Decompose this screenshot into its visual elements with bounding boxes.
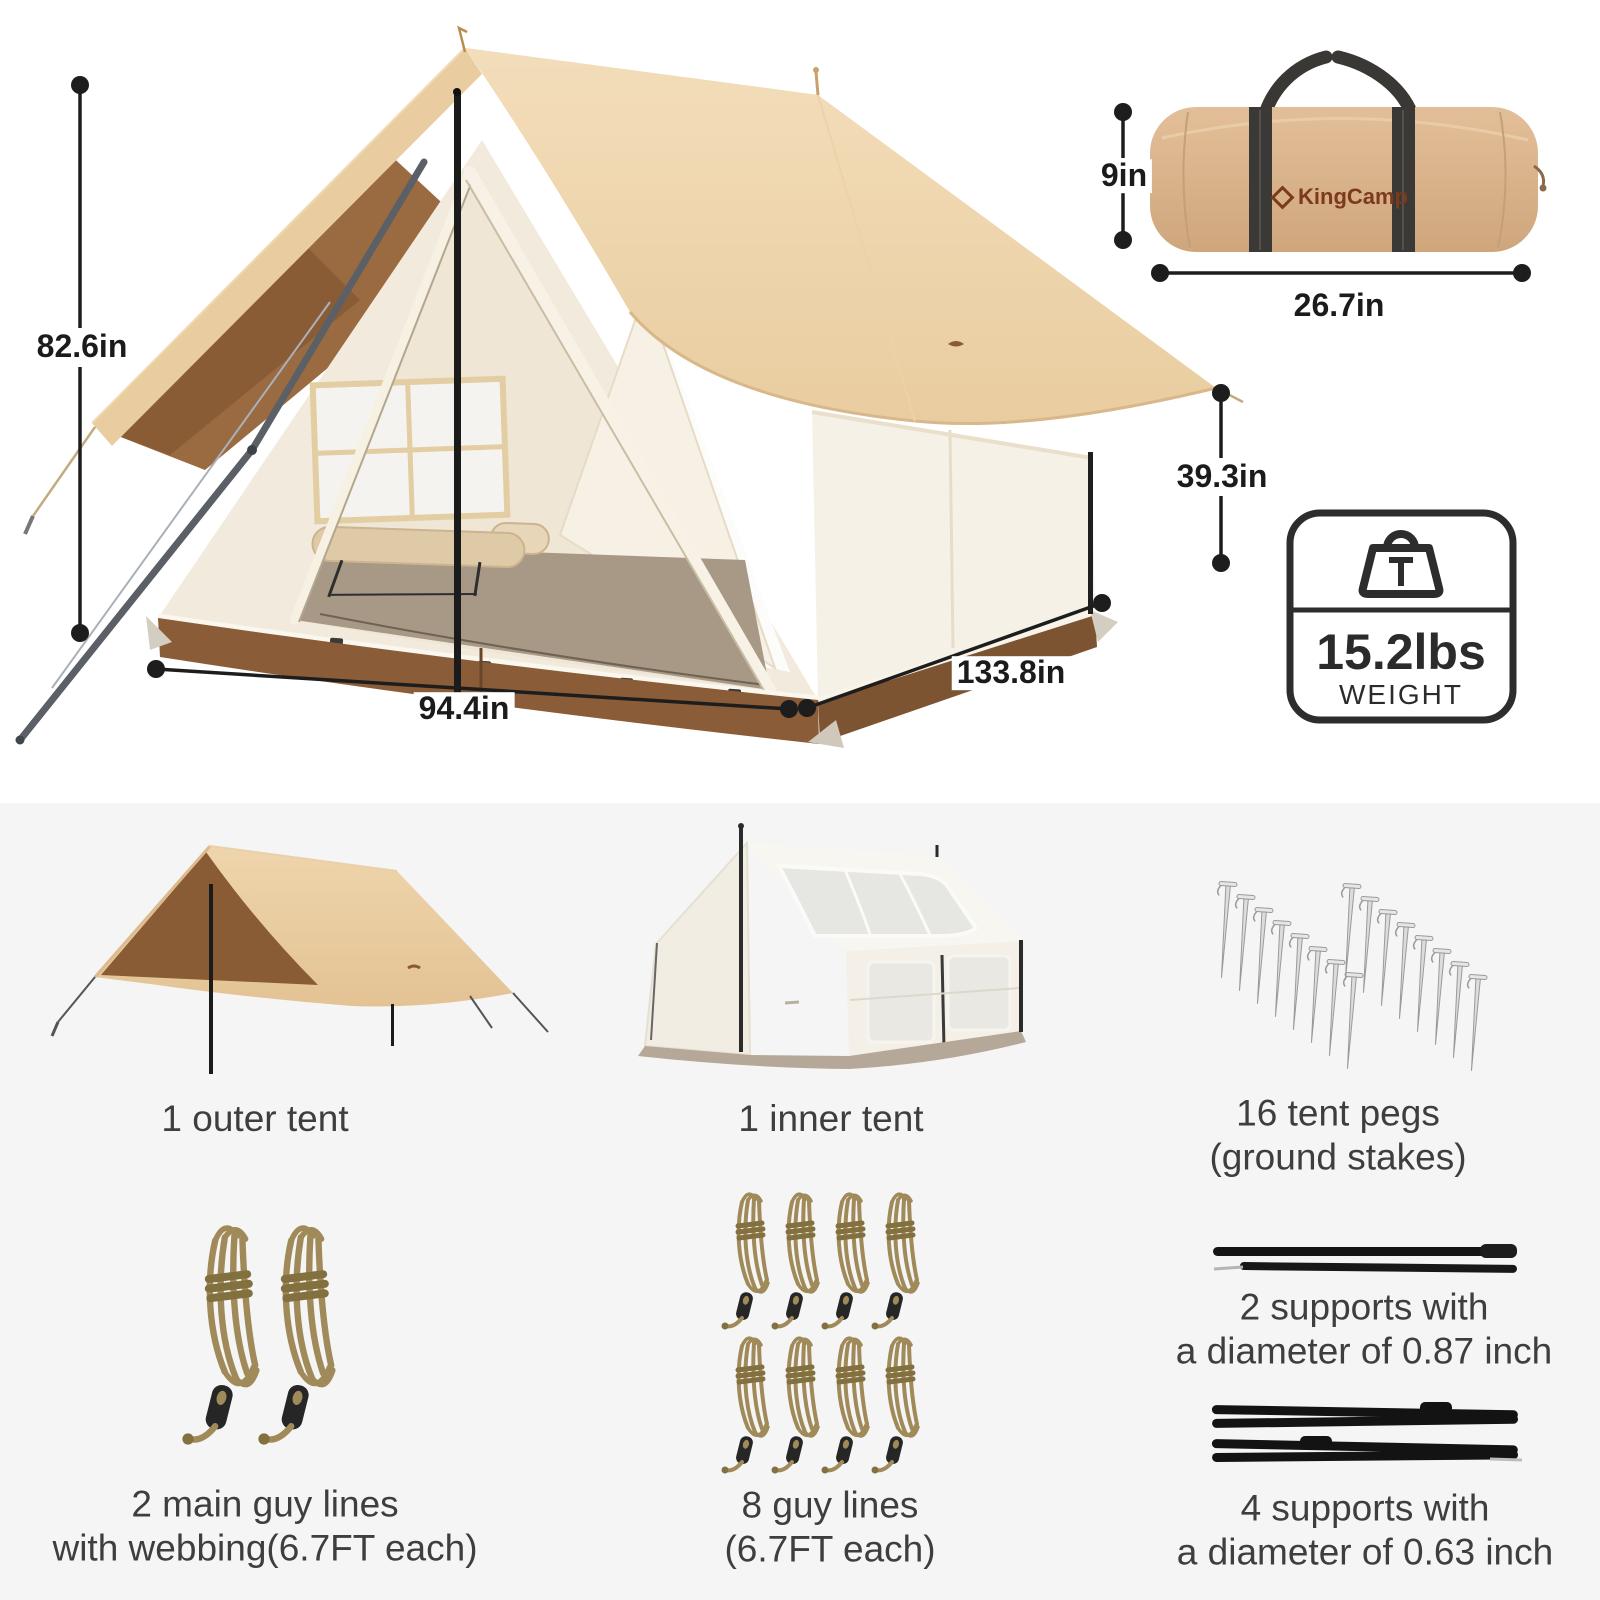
inner-tent-illustration [638, 823, 1026, 1069]
label-guy-lines-line1: 8 guy lines [724, 1484, 935, 1528]
label-main-guy-lines-line2: with webbing(6.7FT each) [52, 1527, 477, 1571]
supports-063-illustration [1212, 1402, 1522, 1462]
weight-label: WEIGHT [1339, 679, 1463, 711]
hero-tent-illustration [16, 28, 1244, 748]
label-tent-pegs-line2: (ground stakes) [1209, 1136, 1466, 1180]
label-guy-lines: 8 guy lines (6.7FT each) [724, 1484, 935, 1573]
guy-lines-illustration [722, 1194, 919, 1473]
label-supports-087: 2 supports with a diameter of 0.87 inch [1176, 1286, 1552, 1375]
main-guy-lines-illustration [182, 1228, 332, 1445]
brand-name: KingCamp [1298, 184, 1408, 210]
brand-diamond-icon [1270, 185, 1294, 209]
label-tent-pegs-line1: 16 tent pegs [1209, 1092, 1466, 1136]
dim-label-side-height: 39.3in [1172, 460, 1273, 494]
carry-bag-illustration [1150, 57, 1547, 252]
label-supports-087-line2: a diameter of 0.87 inch [1176, 1330, 1552, 1374]
dim-label-front-width: 94.4in [414, 692, 515, 726]
label-main-guy-lines: 2 main guy lines with webbing(6.7FT each… [52, 1483, 477, 1572]
dim-label-height: 82.6in [32, 330, 133, 364]
label-tent-pegs: 16 tent pegs (ground stakes) [1209, 1092, 1466, 1181]
dim-label-bag-height: 9in [1096, 159, 1152, 193]
label-inner-tent: 1 inner tent [738, 1097, 923, 1141]
product-infographic: 82.6in 94.4in 133.8in 39.3in 9in 26.7in … [0, 0, 1600, 1600]
dim-label-bag-length: 26.7in [1289, 289, 1390, 323]
label-supports-087-line1: 2 supports with [1176, 1286, 1552, 1330]
outer-tent-illustration [52, 846, 548, 1074]
label-supports-063: 4 supports with a diameter of 0.63 inch [1177, 1487, 1553, 1576]
label-supports-063-line2: a diameter of 0.63 inch [1177, 1531, 1553, 1575]
weight-value: 15.2lbs [1316, 623, 1486, 681]
supports-087-illustration [1213, 1244, 1517, 1273]
bag-brand-logo: KingCamp [1274, 184, 1408, 210]
tent-pegs-illustration [1212, 881, 1487, 1071]
dim-label-depth: 133.8in [952, 656, 1071, 690]
label-supports-063-line1: 4 supports with [1177, 1487, 1553, 1531]
label-main-guy-lines-line1: 2 main guy lines [52, 1483, 477, 1527]
label-guy-lines-line2: (6.7FT each) [724, 1528, 935, 1572]
label-outer-tent: 1 outer tent [161, 1097, 348, 1141]
